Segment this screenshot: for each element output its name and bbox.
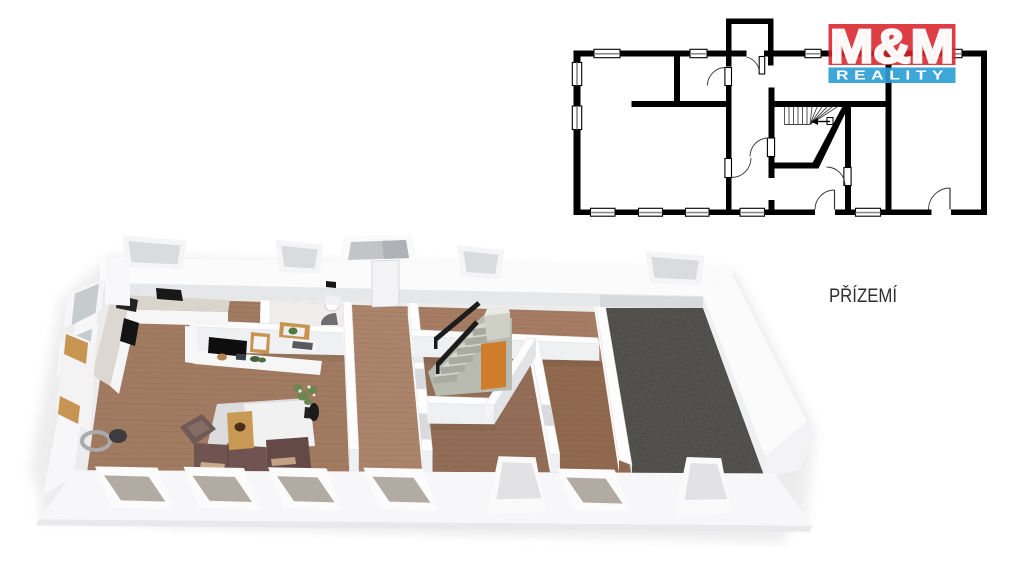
svg-text:REALITY: REALITY: [836, 69, 949, 83]
svg-text:M&M: M&M: [830, 20, 954, 73]
svg-text:PŘÍZEMÍ: PŘÍZEMÍ: [829, 284, 897, 307]
